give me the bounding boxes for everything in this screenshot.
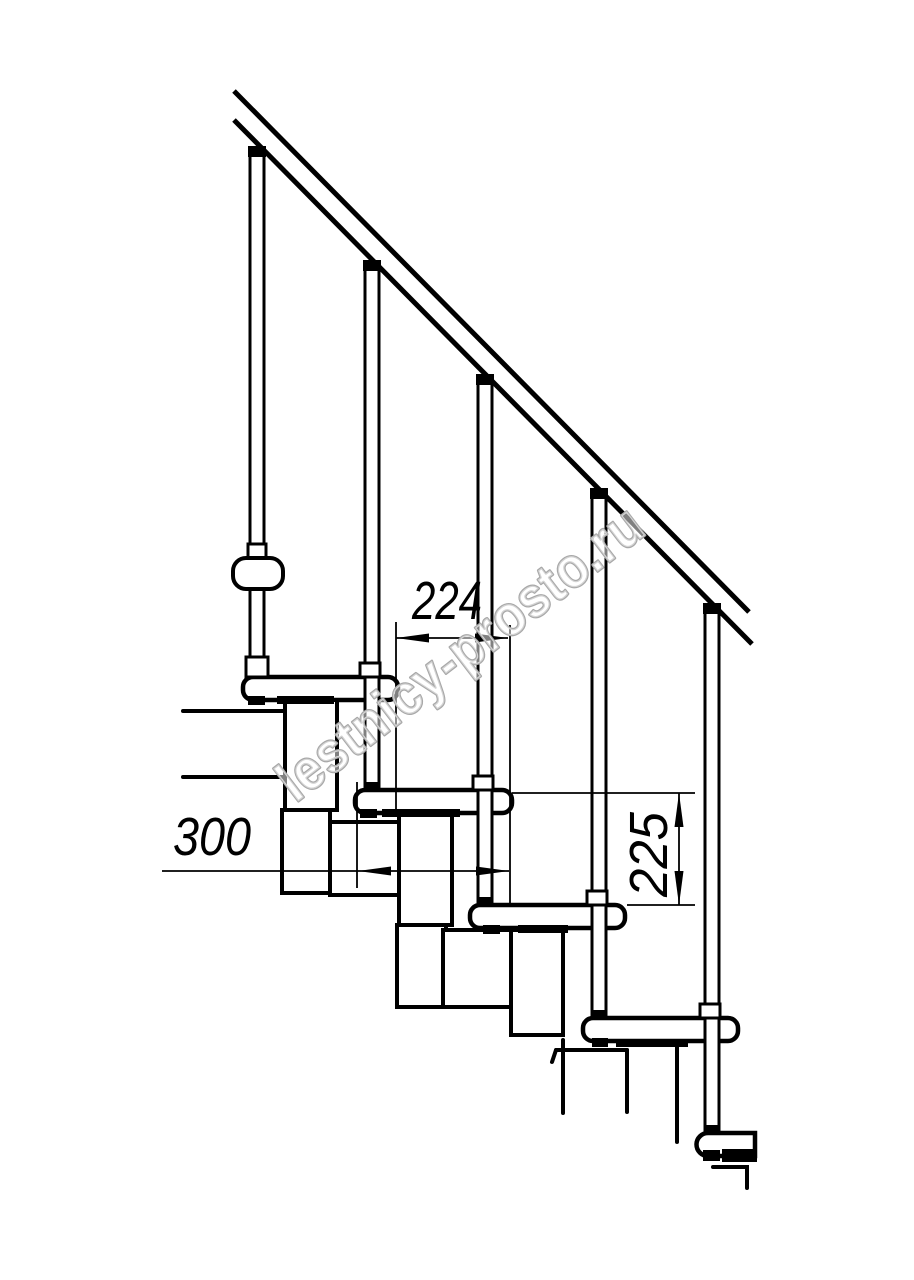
baluster-1-tube bbox=[250, 152, 264, 677]
tread-1-foot-bar bbox=[277, 696, 334, 704]
baluster-4-mid-collar bbox=[587, 891, 607, 905]
module-box-2 bbox=[443, 930, 518, 1007]
baluster-3-foot-wedge bbox=[479, 897, 491, 905]
module-stem-2-upper bbox=[399, 813, 452, 925]
tread-5-foot bbox=[703, 1150, 720, 1161]
module-stem-1-lower bbox=[282, 810, 330, 893]
tread-4-foot bbox=[592, 1038, 608, 1047]
baluster-4-foot-wedge bbox=[593, 1010, 605, 1018]
baluster-3-mid-collar bbox=[473, 776, 493, 790]
fade-line-6 bbox=[713, 1167, 747, 1188]
fade-line-3 bbox=[552, 1050, 556, 1062]
baluster-2-mid-collar bbox=[360, 663, 380, 677]
baluster-5 bbox=[700, 603, 721, 1133]
tread-2-foot bbox=[360, 809, 377, 818]
baluster-1-bracket bbox=[233, 558, 283, 589]
tread-3-foot bbox=[483, 925, 500, 934]
dim-225-label: 225 bbox=[619, 811, 679, 898]
tread-1-foot bbox=[248, 696, 265, 705]
baluster-5-mid-collar bbox=[700, 1004, 720, 1018]
baluster-1 bbox=[233, 146, 283, 677]
module-box-1 bbox=[330, 822, 403, 895]
tread-5-foot-block bbox=[722, 1149, 757, 1162]
tread-2-foot-bar bbox=[382, 809, 460, 817]
dim-300-label: 300 bbox=[173, 807, 251, 867]
drawing-page: 224 300 225 lestnicy-prosto.ru bbox=[0, 0, 914, 1280]
baluster-1-foot-collar bbox=[246, 657, 268, 677]
baluster-2-foot-wedge bbox=[366, 782, 378, 790]
baluster-5-tube bbox=[705, 609, 719, 1133]
tread-4-foot-bar bbox=[616, 1039, 688, 1047]
module-stem-2-lower bbox=[397, 925, 446, 1007]
module-stem-3 bbox=[511, 930, 563, 1035]
tread-3-foot-bar bbox=[518, 925, 568, 933]
staircase-technical-drawing: 224 300 225 lestnicy-prosto.ru bbox=[0, 0, 914, 1280]
baluster-1-upper-collar bbox=[248, 544, 266, 558]
baluster-5-foot-wedge bbox=[706, 1125, 718, 1133]
